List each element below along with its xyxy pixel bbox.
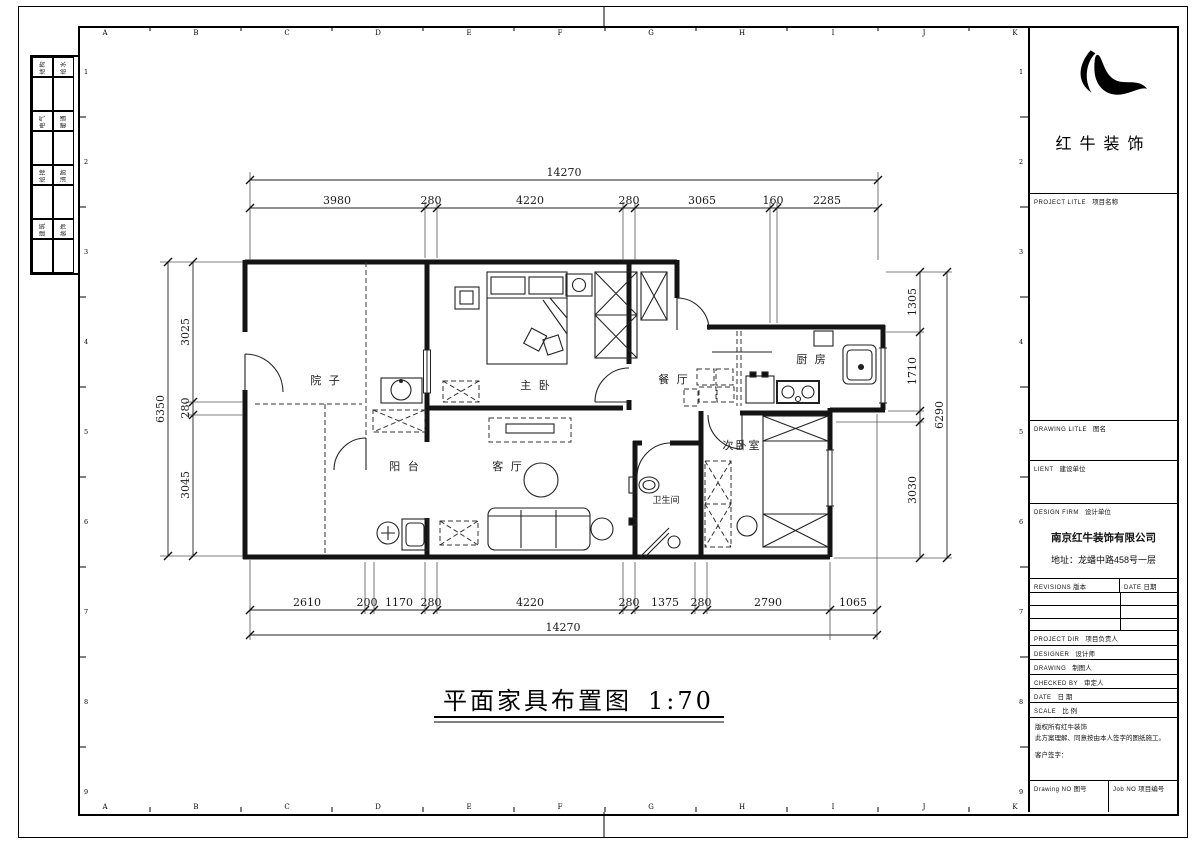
- room-label-dining: 餐 厅: [658, 372, 690, 386]
- designer-en: DESIGNER: [1034, 652, 1069, 658]
- checked-by-cn: 审定人: [1084, 677, 1104, 687]
- window-cutout: [879, 348, 887, 403]
- grid-letter: A: [101, 803, 108, 811]
- grid-number: 2: [84, 158, 88, 166]
- grid-letter: E: [466, 803, 471, 811]
- firm-name: 南京红牛装饰有限公司: [1030, 530, 1177, 545]
- dim-label: 1305: [906, 288, 919, 316]
- dim-label: 2790: [754, 596, 782, 609]
- grid-number: 5: [1019, 428, 1023, 436]
- project-dir-cn: 项目负责人: [1085, 633, 1118, 643]
- client-section: LIENT建设单位: [1030, 460, 1177, 503]
- stove: [777, 381, 819, 403]
- dim-label: 280: [179, 398, 192, 419]
- client-signature-label: 客户签字：: [1035, 750, 1172, 761]
- nightstand: [455, 287, 479, 309]
- drawing-title-cn: 图名: [1093, 423, 1106, 433]
- grid-letter: J: [922, 29, 926, 37]
- drawing-sheet: 结构 给水 电气 暖通 给排 消防 建筑 装饰 A B C D E F G H …: [0, 0, 1200, 844]
- drawing-no-cn: 图号: [1074, 786, 1087, 793]
- grid-letter: C: [284, 803, 289, 811]
- dim-label: 3065: [688, 194, 716, 207]
- grid-number: 4: [84, 338, 88, 346]
- master-door: [595, 368, 629, 402]
- revisions-rows: [1030, 592, 1177, 630]
- grid-letter: G: [648, 803, 654, 811]
- grid-letter: B: [193, 29, 198, 37]
- master-bed: [487, 272, 567, 364]
- balcony-door: [334, 438, 366, 470]
- numbers-section: Drawing NO 图号 Job NO 项目编号: [1030, 780, 1177, 812]
- fridge: [746, 376, 774, 403]
- dim-label: 3025: [179, 318, 192, 346]
- corner-unit: [566, 274, 592, 296]
- kitchen-box: [814, 331, 833, 346]
- dim-label: 280: [421, 596, 442, 609]
- revisions-cn: 版本: [1073, 584, 1086, 591]
- dim-label: 6350: [154, 395, 167, 423]
- grid-number: 6: [84, 518, 88, 526]
- windows: [423, 348, 887, 506]
- copyright-line1: 版权所有红牛装饰: [1035, 722, 1172, 733]
- dim-label: 1170: [385, 596, 413, 609]
- toilet: [639, 477, 659, 493]
- grid-letter: A: [101, 29, 108, 37]
- dim-label: 160: [763, 194, 784, 207]
- brand-name: 红牛装饰: [1030, 130, 1177, 154]
- project-title-cn: 项目名称: [1092, 196, 1118, 206]
- sheet-title-group: 平面家具布置图 1:70: [434, 687, 724, 722]
- stool: [737, 516, 757, 536]
- grid-number: 1: [1019, 68, 1023, 76]
- window-cutout: [826, 450, 834, 506]
- dim-label: 3045: [179, 471, 192, 499]
- grid-number: 9: [84, 788, 88, 796]
- grid-number: 6: [1019, 518, 1023, 526]
- dim-label: 280: [691, 596, 712, 609]
- room-label-master: 主 卧: [520, 379, 552, 392]
- dim-label: 14270: [547, 166, 582, 179]
- date-row: DATE日 期: [1030, 688, 1177, 702]
- rev-date-en: DATE: [1124, 585, 1142, 591]
- designer-row: DESIGNER设计师: [1030, 645, 1177, 659]
- copyright-section: 版权所有红牛装饰 此方案理解、同意按由本人签字的图纸施工。 客户签字：: [1030, 717, 1177, 780]
- room-label-bedroom2: 次卧室: [723, 438, 762, 452]
- designer-cn: 设计师: [1075, 648, 1095, 658]
- grid-number: 8: [1019, 698, 1023, 706]
- floor-drain: [668, 536, 680, 548]
- grid-number: 2: [1019, 158, 1023, 166]
- bath-door: [637, 443, 671, 477]
- faucet: [629, 518, 636, 525]
- sofa: [488, 508, 590, 550]
- client-cn: 建设单位: [1060, 463, 1086, 473]
- grid-number: 8: [84, 698, 88, 706]
- grid-number: 4: [1019, 338, 1023, 346]
- drawing-title-section: DRAWING LITLE图名: [1030, 420, 1177, 460]
- scale-en: SCALE: [1034, 709, 1056, 715]
- dim-label: 280: [619, 194, 640, 207]
- dim-label: 4220: [516, 194, 544, 207]
- drawing-title-en: DRAWING LITLE: [1034, 427, 1087, 433]
- grid-letter: F: [558, 803, 563, 811]
- grid-letter: F: [558, 29, 563, 37]
- dim-label: 2610: [293, 596, 321, 609]
- sheet-title: 平面家具布置图: [443, 687, 632, 715]
- grid-letters-top: A B C D E F G H I J K: [101, 29, 1018, 37]
- dim-label: 6290: [933, 401, 946, 429]
- grid-letter: K: [1012, 803, 1018, 811]
- scale-cn: 比 例: [1062, 705, 1077, 715]
- room-label-living: 客 厅: [492, 459, 524, 473]
- courtyard-door: [245, 354, 283, 392]
- dim-label: 3980: [323, 194, 351, 207]
- grid-number: 5: [84, 428, 88, 436]
- room-label-kitchen: 厨 房: [796, 353, 828, 366]
- grid-letter: K: [1012, 29, 1018, 37]
- logo-area: 红牛装饰: [1030, 26, 1177, 193]
- bed2: [763, 416, 828, 547]
- grid-letter: E: [466, 29, 471, 37]
- grid-number: 3: [1019, 248, 1023, 256]
- drawing-by-en: DRAWING: [1034, 666, 1066, 672]
- grid-letter: D: [375, 803, 381, 811]
- entry-door: [677, 298, 709, 330]
- drawing-by-cn: 制图人: [1072, 662, 1092, 672]
- grid-letter: I: [832, 29, 835, 37]
- dim-label: 3030: [906, 476, 919, 504]
- job-no-en: Job NO: [1113, 787, 1136, 793]
- scale-row: SCALE比 例: [1030, 702, 1177, 717]
- dim-label: 200: [357, 596, 378, 609]
- brand-logo-icon: [1056, 44, 1152, 122]
- drawing-no-en: Drawing NO: [1034, 787, 1072, 793]
- coffee-table: [524, 463, 558, 497]
- dim-label: 14270: [546, 621, 581, 634]
- title-block: 红牛装饰 PROJECT LITLE项目名称 DRAWING LITLE图名 L…: [1028, 26, 1177, 812]
- project-dir-en: PROJECT DIR: [1034, 637, 1079, 643]
- dim-label: 280: [421, 194, 442, 207]
- project-dir-row: PROJECT DIR项目负责人: [1030, 630, 1177, 645]
- copyright-line2: 此方案理解、同意按由本人签字的图纸施工。: [1035, 733, 1172, 744]
- grid-number: 7: [84, 608, 88, 616]
- dim-label: 280: [619, 596, 640, 609]
- grid-letter: D: [375, 29, 381, 37]
- client-en: LIENT: [1034, 467, 1054, 473]
- checked-by-row: CHECKED BY审定人: [1030, 674, 1177, 688]
- dim-label: 1375: [651, 596, 679, 609]
- dim-label: 2285: [813, 194, 841, 207]
- design-firm-cn: 设计单位: [1085, 506, 1111, 516]
- rev-date-cn: 日期: [1144, 584, 1157, 591]
- dim-label: 1065: [839, 596, 867, 609]
- firm-address: 地址：龙蟠中路458号一层: [1030, 553, 1177, 566]
- room-label-bath: 卫生间: [652, 494, 679, 506]
- grid-letter: B: [193, 803, 198, 811]
- grid-letter: I: [832, 803, 835, 811]
- doors: [245, 298, 742, 477]
- floor-plan-svg: A B C D E F G H I J K A B C D E F G H I …: [0, 0, 1200, 844]
- revisions-en: REVISIONS: [1034, 585, 1071, 591]
- room-label-balcony: 阳 台: [389, 459, 421, 473]
- sheet-scale: 1:70: [648, 687, 714, 715]
- grid-letters-bottom: A B C D E F G H I J K: [101, 803, 1018, 811]
- design-firm-en: DESIGN FIRM: [1034, 510, 1079, 516]
- dim-label: 4220: [516, 596, 544, 609]
- tv: [506, 424, 554, 433]
- grid-letter: H: [739, 29, 745, 37]
- date-en: DATE: [1034, 695, 1052, 701]
- grid-letter: G: [648, 29, 654, 37]
- design-firm-section: DESIGN FIRM设计单位 南京红牛装饰有限公司 地址：龙蟠中路458号一层: [1030, 503, 1177, 578]
- side-table: [591, 518, 613, 540]
- checked-by-en: CHECKED BY: [1034, 681, 1078, 687]
- grid-number: 7: [1019, 608, 1023, 616]
- project-name-section: PROJECT LITLE项目名称: [1030, 193, 1177, 420]
- grid-number: 9: [1019, 788, 1023, 796]
- grid-letter: J: [922, 803, 926, 811]
- dimension-labels: 14270 3980 280 4220 280 3065 160 2285 26…: [154, 166, 946, 634]
- revisions-header: REVISIONS 版本 DATE 日期: [1030, 578, 1177, 592]
- grid-number: 3: [84, 248, 88, 256]
- grid-letter: C: [284, 29, 289, 37]
- project-title-en: PROJECT LITLE: [1034, 200, 1086, 206]
- date-cn: 日 期: [1058, 691, 1073, 701]
- room-label-courtyard: 院 子: [310, 373, 342, 387]
- drawing-by-row: DRAWING制图人: [1030, 659, 1177, 674]
- grid-letter: H: [739, 803, 745, 811]
- dim-label: 1710: [906, 357, 919, 385]
- grid-number: 1: [84, 68, 88, 76]
- job-no-cn: 项目编号: [1138, 786, 1164, 793]
